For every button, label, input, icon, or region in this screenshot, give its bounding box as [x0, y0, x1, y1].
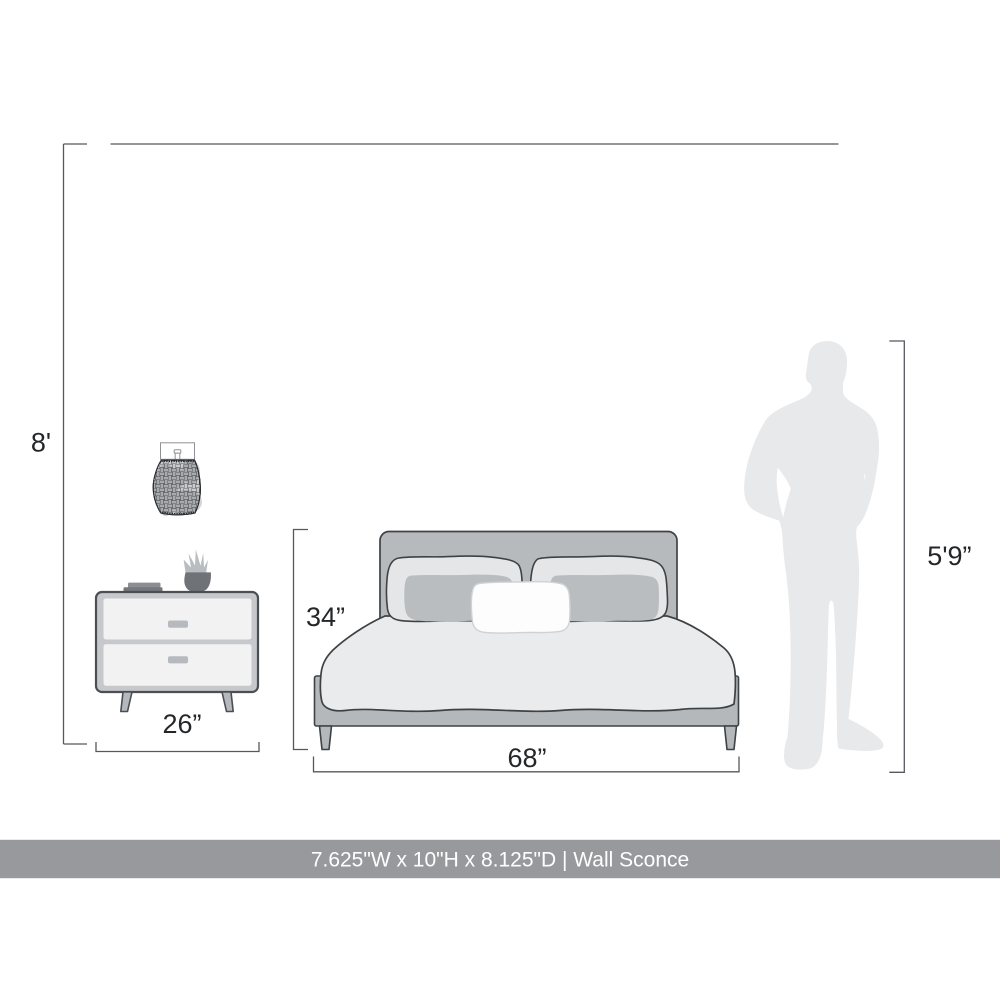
svg-text:5'9”: 5'9”	[927, 541, 971, 571]
svg-text:68”: 68”	[507, 743, 546, 773]
svg-text:34”: 34”	[306, 602, 345, 632]
svg-text:7.625"W x 10"H x 8.125"D | Wal: 7.625"W x 10"H x 8.125"D | Wall Sconce	[311, 849, 689, 872]
svg-text:8': 8'	[31, 428, 51, 458]
svg-text:26”: 26”	[162, 709, 201, 739]
